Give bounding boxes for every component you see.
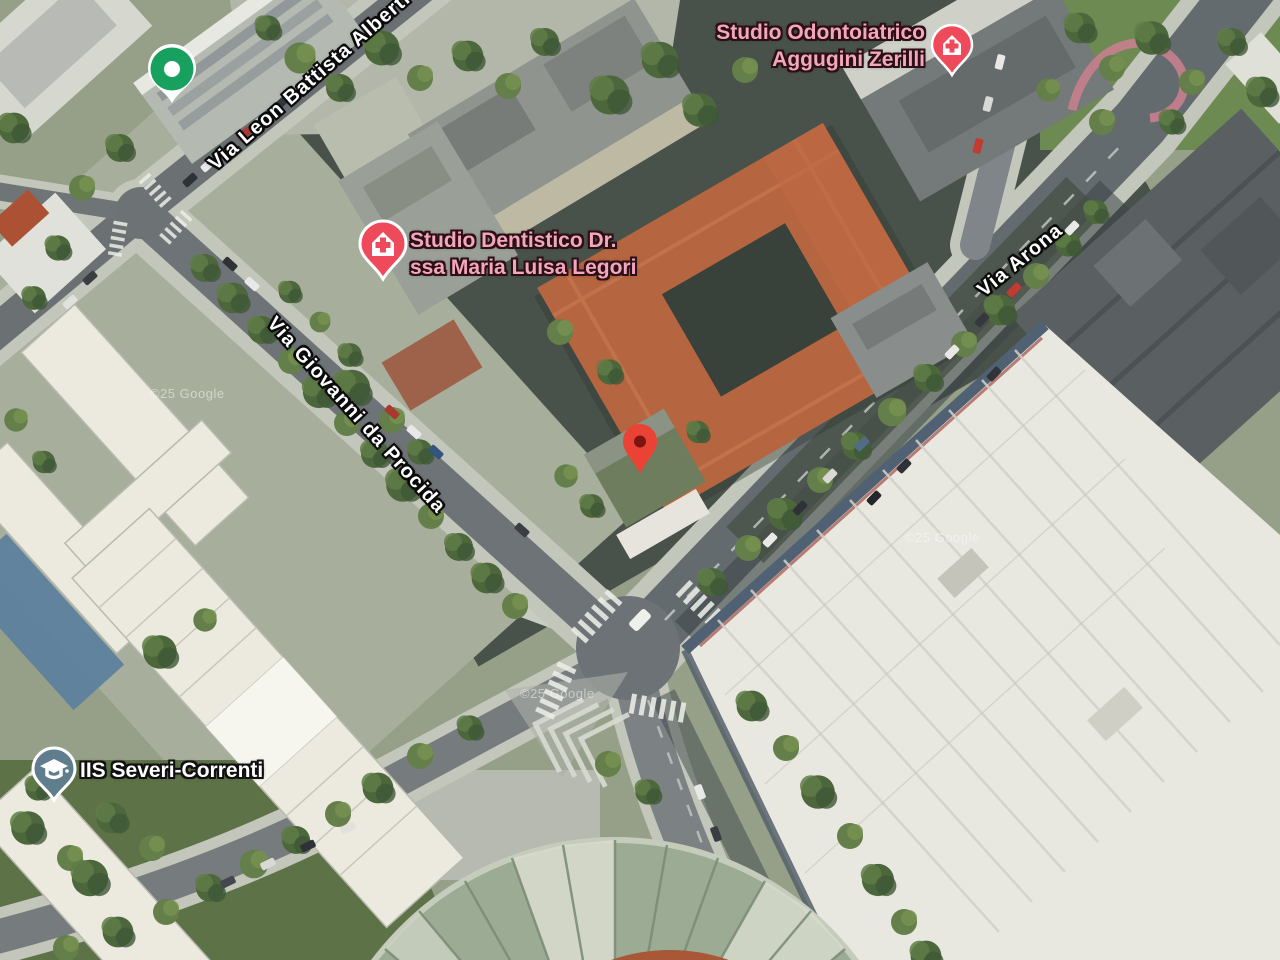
poi-label-iis-severi-correnti[interactable]: IIS Severi-Correnti xyxy=(80,757,263,784)
green-dot-pin[interactable] xyxy=(143,40,201,111)
poi-label-line2: Aggugini Zerilli xyxy=(545,46,925,73)
map-canvas[interactable]: Via Leon Battista Alberti Via Giovanni d… xyxy=(0,0,1280,960)
medical-house-cross-icon xyxy=(929,22,975,78)
green-dot-pin-icon xyxy=(143,40,201,106)
graduation-cap-icon xyxy=(29,744,79,804)
poi-label-line2: ssa Maria Luisa Legori xyxy=(410,254,636,281)
medical-house-cross-pin-odontoiatrico[interactable] xyxy=(929,22,975,83)
medical-house-cross-icon xyxy=(356,217,410,283)
destination-pin-icon xyxy=(622,424,658,476)
poi-label-studio-odontoiatrico[interactable]: Studio Odontoiatrico Aggugini Zerilli xyxy=(545,19,925,73)
destination-pin[interactable] xyxy=(622,424,658,481)
poi-label-studio-dentistico[interactable]: Studio Dentistico Dr. ssa Maria Luisa Le… xyxy=(410,227,636,281)
poi-label-line1: Studio Odontoiatrico xyxy=(545,19,925,46)
medical-house-cross-pin-dentistico[interactable] xyxy=(356,217,410,288)
graduation-cap-pin-school[interactable] xyxy=(29,744,79,809)
poi-label-line1: Studio Dentistico Dr. xyxy=(410,227,636,254)
